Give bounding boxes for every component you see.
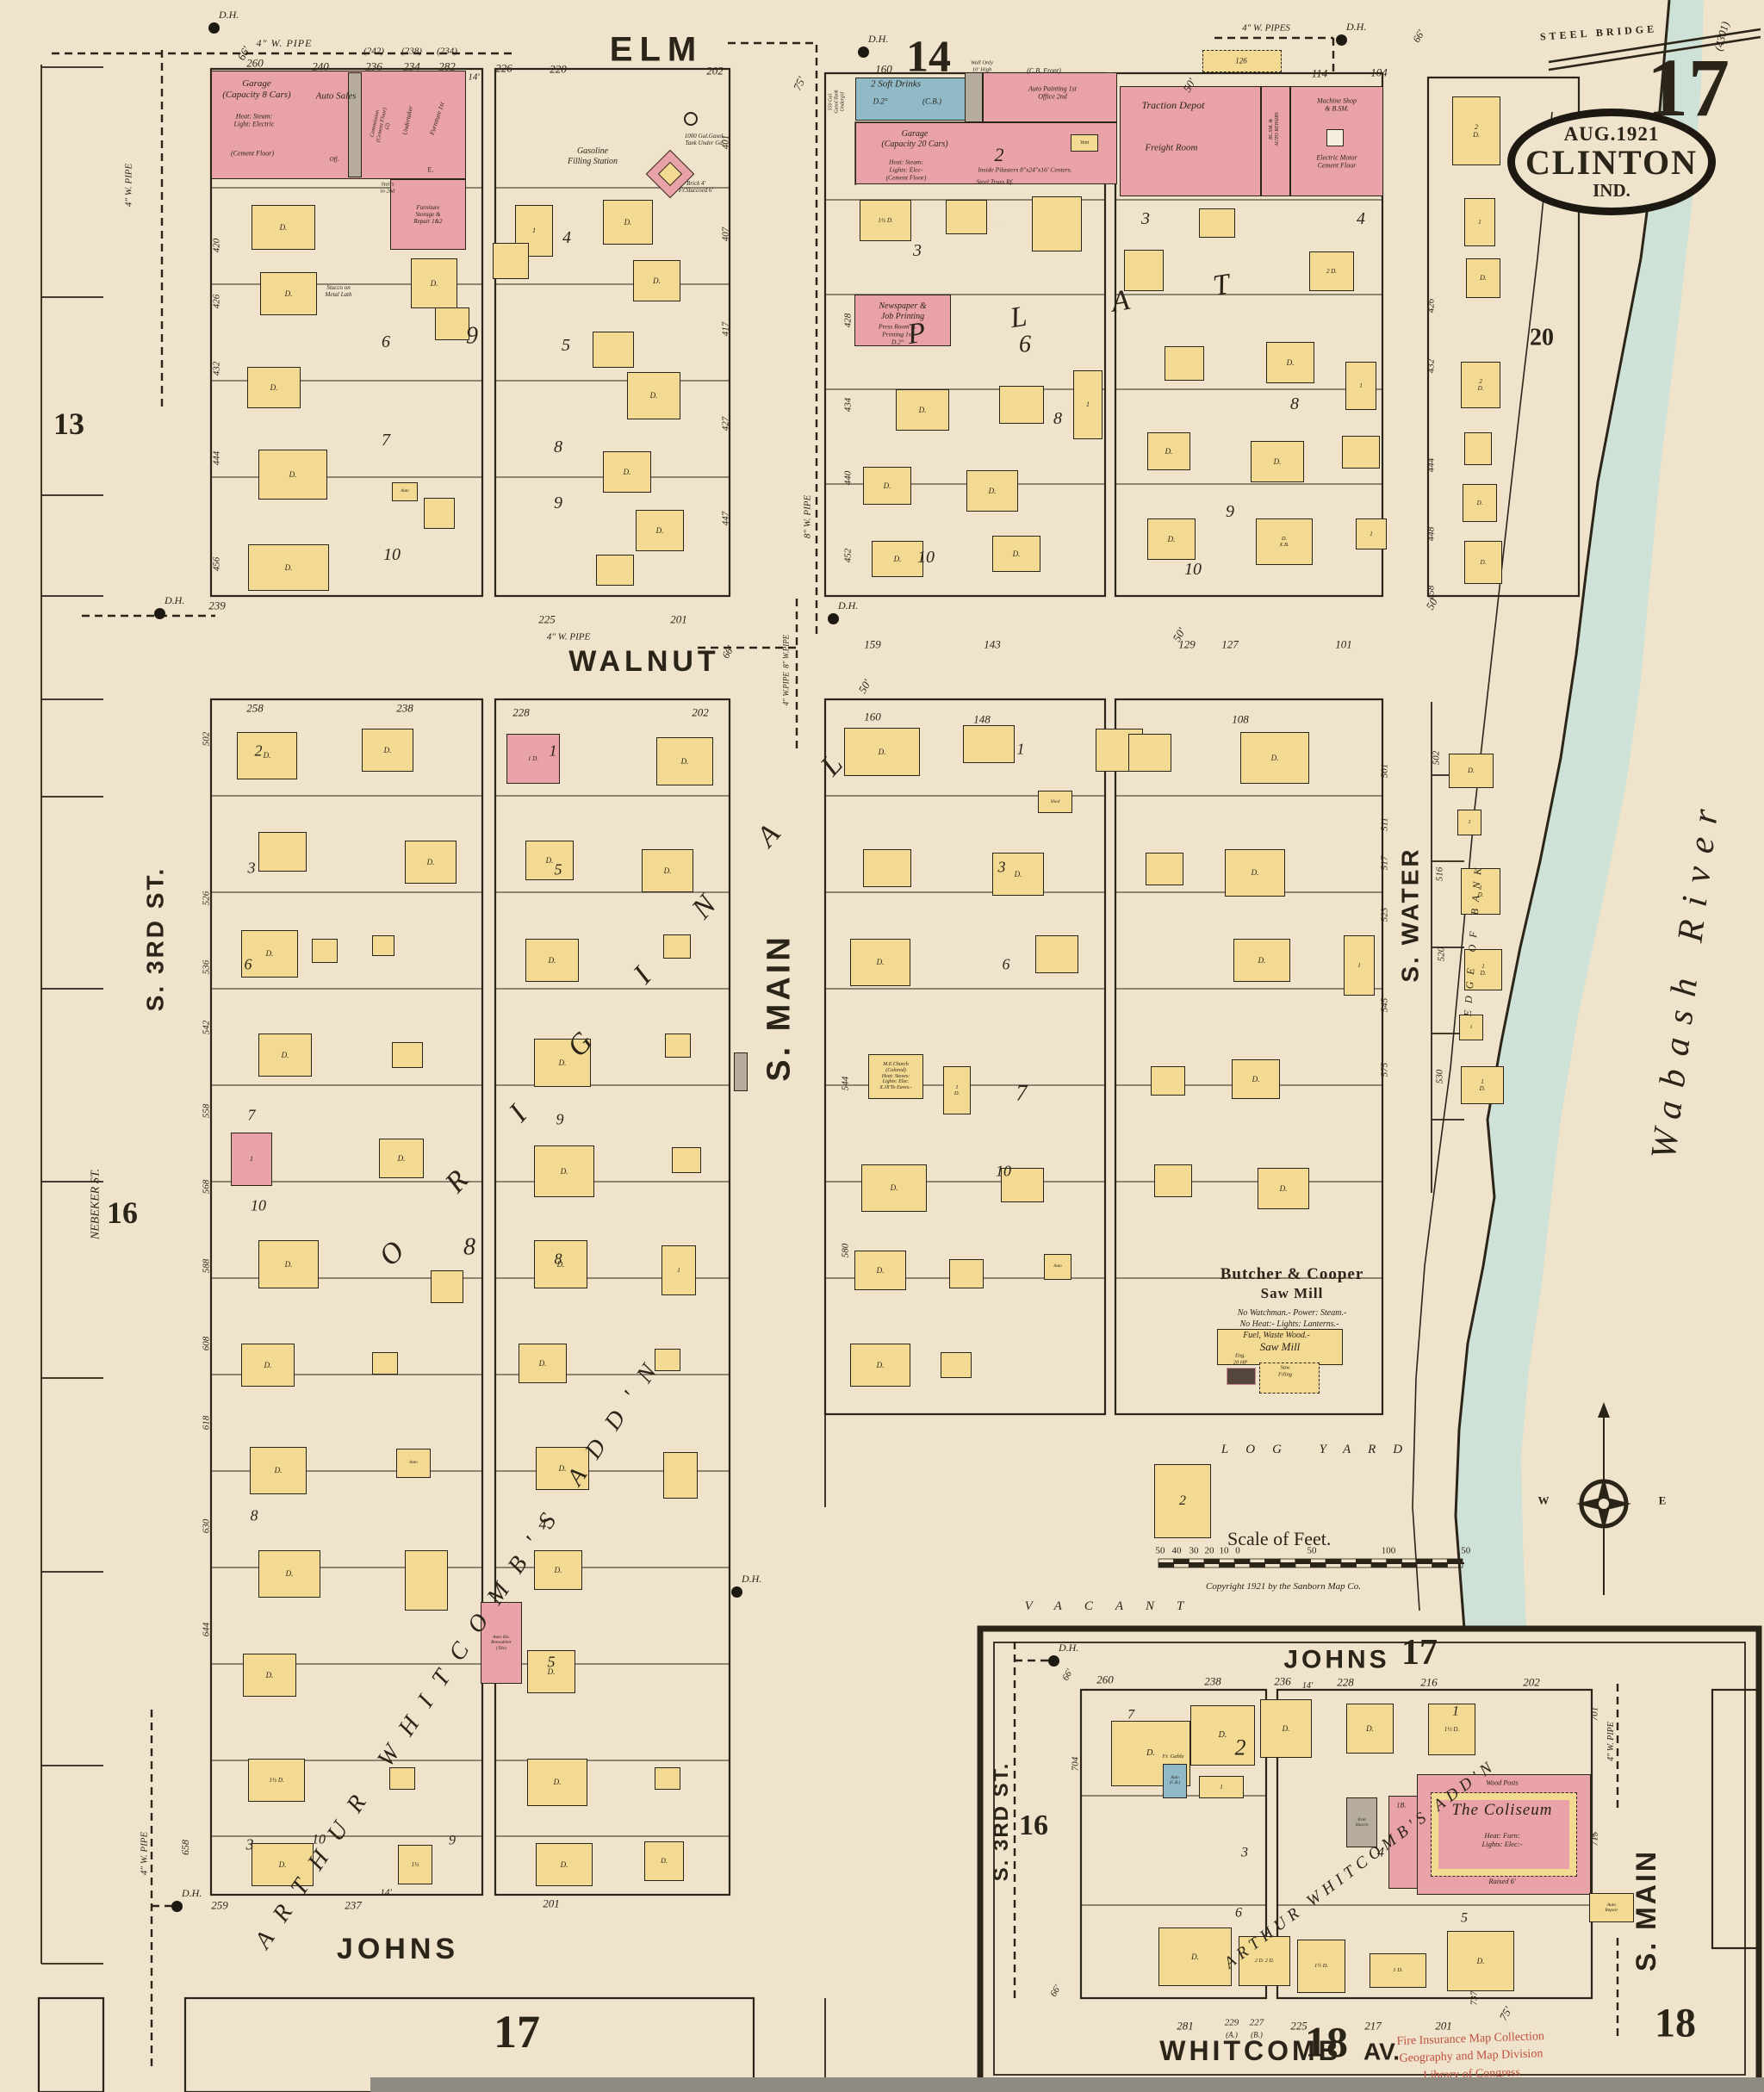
map-label-17: 17 [1401,1632,1438,1675]
map-label-502: 502 [1432,751,1443,766]
map-label-6: 6 [1003,955,1010,973]
building-d: D. [1464,541,1502,584]
map-label-3: 3 [248,859,256,877]
map-label-407: 407 [721,227,732,242]
building [312,939,338,963]
building-label: D. [1015,870,1022,878]
building-label: Auto [409,1461,417,1466]
map-label-517: 517 [1380,856,1391,871]
building-d: D. [525,841,574,880]
building-label: D. [285,563,293,572]
building [941,1352,972,1378]
building-label: D. [270,383,278,392]
scale-bar-segment [1295,1559,1311,1563]
compass-north-arrow-icon [1598,1402,1610,1418]
map-label-238: 238 [1204,1674,1221,1687]
map-label-10: 10 [996,1162,1011,1180]
map-label-fuel-waste-wood: Fuel, Waste Wood.- [1243,1331,1310,1341]
building-label: 1 [1086,400,1090,408]
building [258,832,307,872]
map-label-4-w-pipes: 4" W. PIPES [1242,23,1290,34]
building-label: D. [1146,1748,1155,1759]
dh-label: D.H. [838,599,858,612]
map-label-126: 126 [1235,57,1247,66]
building-1: 1 D. [1461,1066,1504,1104]
building [348,72,362,177]
map-label-160: 160 [875,62,892,75]
dh-marker-icon: D.H. [858,47,869,58]
map-label-2-soft-drinks: 2 Soft Drinks [871,79,921,90]
building [665,1034,691,1058]
map-label-440: 440 [843,471,854,486]
building [672,1147,701,1173]
building-label: D. [1168,535,1176,543]
map-label-3: 3 [1141,209,1150,230]
building-d: D. [1260,1699,1312,1758]
building-1: 1 [1457,810,1481,835]
map-label-bl-sm-auto-repairs: BL.SM. & AUTO REPAIRS [1269,112,1281,146]
map-label-butcher-cooper: Butcher & Cooper [1221,1265,1364,1284]
building-label: D. [546,856,554,865]
building-label: 1 [1359,382,1363,389]
map-label-458: 458 [1426,586,1438,600]
map-label-inside-pilasters-8-x24-x16-cen: Inside Pilasters 8"x24"x16' Centers. [978,167,1071,175]
compass-hub [1598,1498,1610,1510]
map-label-220: 220 [550,62,567,75]
building-label: D. [555,1566,562,1574]
map-label-9: 9 [466,321,478,350]
map-label-658: 658 [179,1840,191,1855]
map-label-444: 444 [1426,458,1438,473]
building-label: Auto Repair [1606,1903,1618,1914]
building-label: 2 D. [1478,378,1484,392]
map-label-444: 444 [212,451,223,466]
map-label-wood-posts: Wood Posts [1486,1779,1518,1786]
building [435,307,469,340]
building-d: D. [525,939,579,982]
block-outline [1115,699,1382,1414]
building-d: D. [1233,939,1290,982]
building-label: D. [561,1860,568,1869]
map-label-236: 236 [365,59,382,72]
map-label-8: 8 [251,1506,258,1524]
map-label-3: 3 [246,1835,254,1853]
building-d: D. [252,205,315,250]
map-label-press-room-b-printing-1st-d-2: Press Room B. Printing 1st D.2° [879,324,916,347]
map-label-568: 568 [202,1180,213,1195]
map-label-b: (B.) [1251,2031,1263,2040]
building-d: D. [411,258,457,308]
map-label-6: 6 [382,332,390,353]
building-label: 2 D. [1326,268,1337,275]
building-label: D. [650,391,658,400]
map-label-traction-depot: Traction Depot [1141,99,1204,111]
building [1165,346,1204,381]
map-label-saw-filing: Saw Filing [1278,1364,1292,1377]
map-label-148: 148 [973,712,991,725]
map-label-4: 4 [539,1515,547,1533]
map-label-8: 8 [1290,394,1299,415]
building [663,1452,698,1499]
map-label-4-w-pipe: 4" W. PIPE [1606,1722,1617,1761]
map-label-101: 101 [1335,637,1352,650]
map-label-s-main: S. MAIN [761,934,799,1082]
map-label-1: 1 [550,742,557,760]
building-label: D. [1477,1957,1485,1965]
building [999,386,1044,424]
building-label: 1 D. [1393,1967,1402,1973]
map-label-gasoline-filling-station: Gasoline Filling Station [568,146,618,167]
map-label-4-w-pipe-8-w-pipe: 4" W.PIPE 8" W.PIPE [782,635,792,705]
building-label: D. [877,1266,885,1275]
scale-bar-segment [1447,1559,1463,1563]
map-label-8: 8 [555,1250,562,1268]
scale-bar-segment [1158,1563,1174,1567]
map-label-237: 237 [345,1898,362,1911]
building-label: D. [286,1569,294,1578]
map-label-228: 228 [1337,1675,1354,1688]
building-label: D. [1480,274,1487,282]
building-label: Vent [1080,140,1089,146]
building-label: D. [266,949,274,958]
title-date: AUG.1921 [1564,124,1660,144]
building-label: D. [664,866,672,875]
map-label-stucco-on-metal-lath: Stucco on Metal Lath [326,284,352,299]
building-label: D. [1165,447,1173,456]
map-label-114: 114 [1312,66,1328,79]
map-label-426: 426 [212,295,223,309]
building-label: 2 D. [1473,123,1480,139]
building-label: Auto [1053,1264,1061,1269]
map-label-452: 452 [843,549,854,563]
building-d: D. [536,1843,593,1886]
building-1: 1 [231,1133,272,1186]
scale-bar-segment [1265,1559,1281,1563]
building-1: 1 [1356,518,1387,549]
map-label-502: 502 [202,732,213,747]
map-label-fr-gable: Fr. Gable [1163,1754,1184,1760]
map-label-234: 234 [403,59,420,72]
building-label: D. [1280,1184,1288,1193]
building-label: D. [264,1361,272,1369]
building-label: 1½ D. [1444,1726,1459,1733]
map-label-brick-4-fr-stuccoed-6: Brick 4' Fr.Stuccoed 6' [679,180,713,195]
map-label-523: 523 [1380,908,1391,922]
map-label-heat-steam-lights-elec-cement-: Heat: Steam: Lights: Elec- (Cement Floor… [886,159,927,183]
dh-label: D.H. [1059,1642,1078,1654]
map-label-9: 9 [556,1110,564,1128]
building-label: D. [1274,457,1282,466]
map-label-electric-motor-cement-floor: Electric Motor Cement Floor [1316,154,1357,171]
building [734,1052,748,1091]
map-label-550-gal-gasol-tank-underg-d: 550 Gal. Gasol.Tank Underg'd [828,90,846,113]
building-label: Iron Stucco [1356,1817,1369,1828]
map-label-w: W [1538,1493,1550,1506]
building-auto: Auto Repair [1589,1893,1634,1922]
building-label: 1 [1357,962,1361,969]
building-label: D. [1013,549,1021,558]
map-label-202: 202 [706,64,724,77]
copyright-line: Copyright 1921 by the Sanborn Map Co. [1206,1581,1361,1592]
building [405,1550,448,1611]
building-d: D. [656,737,713,785]
scale-tick-label: 150 [1457,1546,1471,1557]
building-label: 2 D. 2 D. [1255,1959,1274,1965]
building-label: D. [989,487,997,495]
building-auto: Auto [396,1449,431,1478]
map-label-544: 544 [841,1077,852,1091]
map-label-1: 1 [1452,1704,1459,1721]
building-label: D. X.B. [1279,536,1289,549]
building-d: D. [1147,518,1196,560]
building-1: 1 [1344,935,1375,996]
building-d: D. [863,467,911,505]
building-label: Shed [1051,799,1060,804]
building [424,498,455,529]
building-label: 1 [250,1155,253,1163]
building [1151,1066,1185,1096]
map-label-5: 5 [1461,1911,1468,1927]
building-d: D. [519,1344,567,1383]
map-label-520: 520 [1437,947,1448,962]
map-label-240: 240 [312,59,329,72]
map-label-3: 3 [998,858,1006,876]
map-label-580: 580 [841,1244,852,1258]
map-label-4-w-pipe: 4" W. PIPE [547,632,590,643]
building-d: D. [1449,754,1494,788]
building [946,200,987,234]
map-label-434: 434 [843,398,854,413]
map-label-14: 14' [1302,1681,1313,1692]
building-label: D. [656,526,664,535]
dh-marker-icon: D.H. [154,608,165,619]
map-label-575: 575 [1380,1063,1391,1077]
building-label: D. [431,279,438,288]
building-label: D. [1287,358,1295,367]
map-label-217: 217 [1364,2019,1382,2032]
building-label: D. [1252,868,1259,877]
building [431,1270,463,1303]
map-label-newspaper-job-printing: Newspaper & Job Printing [879,301,926,322]
map-label-14: 14' [468,72,479,84]
map-label-456: 456 [212,557,223,572]
building-d: D. [850,1344,910,1387]
building-label: 1½ D. [269,1777,283,1784]
building [863,849,911,887]
building-d: D. [1232,1059,1280,1099]
building-d: D. [642,849,693,892]
building-2: 2 D. [1452,96,1500,165]
building-label: D. [1271,754,1279,762]
map-label-258: 258 [246,701,264,714]
building-d: D. [247,367,301,408]
map-label-432: 432 [212,362,223,376]
building [593,332,634,368]
building-d: D. [248,544,329,591]
map-label-4-w-pipe: 4" W. PIPE [140,1832,151,1875]
building-label: 1 [1370,531,1373,537]
map-label-c-b-front: (C.B. Front) [1027,66,1060,74]
building [392,1042,423,1068]
building-d: D. [1147,432,1190,470]
building-iron: Iron Stucco [1346,1797,1377,1847]
map-label-129: 129 [1178,637,1196,650]
map-label-4-w-pipe: 4" W. PIPE [257,37,313,49]
building-label: D. [877,1361,885,1369]
building-1: 1 [1459,1015,1483,1040]
building [684,112,698,126]
map-label-427: 427 [721,417,732,431]
map-label-4-w-pipe: 4" W. PIPE [124,164,135,207]
map-label-143: 143 [984,637,1001,650]
building-label: 1 [1478,219,1481,226]
building [493,243,529,279]
building-1: 1½ [398,1845,432,1884]
map-label-259: 259 [211,1898,228,1911]
building [1035,935,1078,973]
scale-tick-label: 10 [1220,1546,1229,1557]
map-label-4: 4 [1377,1846,1384,1862]
dh-marker-icon: D.H. [731,1586,742,1598]
building-label: Auto Ho. Remodeler (Tile) [491,1635,512,1651]
building-1: 1 [1345,362,1376,410]
scale-bar-segment [1174,1559,1189,1563]
building-auto: Auto [392,482,418,501]
building-label: D. [1481,559,1487,566]
building-2: 2 D. [1461,362,1500,408]
building-label: Auto (C.B.) [1170,1776,1180,1786]
map-label-227: 227 [1250,2018,1264,2029]
map-label-5: 5 [999,223,1000,224]
title-state: IND. [1593,182,1630,200]
map-label-16: 16 [107,1195,138,1231]
map-label-201: 201 [670,612,687,625]
building-label: D. [624,218,632,227]
building-label: 1½ D. [1314,1963,1328,1969]
map-label-johns: JOHNS [1283,1644,1389,1674]
map-label-225: 225 [538,612,556,625]
map-label-618: 618 [202,1416,213,1431]
building-d: D. [362,729,413,772]
building-label: D. [275,1466,283,1474]
scale-bar-segment [1417,1559,1432,1563]
building-d: D. [258,1550,320,1598]
map-label-608: 608 [202,1337,213,1351]
building-label: D. [891,1183,898,1192]
building [1146,853,1183,885]
map-label-a: (A.) [1226,2031,1238,2040]
building-label: 1 [1220,1784,1223,1791]
building-label: D. [1366,1724,1374,1733]
building-label: D. [289,470,297,479]
map-label-8-w-pipe: 8" W. PIPE [803,495,814,538]
scale-tick-label: 50 [1307,1546,1317,1557]
map-label-6: 6 [1235,1906,1242,1922]
map-label-7: 7 [1016,1081,1028,1108]
scale-bar-segment [1371,1563,1387,1567]
map-label-432: 432 [1426,359,1438,374]
building-d: D. [1258,1168,1309,1209]
map-label-saw-mill: Saw Mill [1261,1285,1324,1302]
building-label: D. [1252,1075,1260,1083]
scale-tick-label: 20 [1205,1546,1214,1557]
building-shed: Shed [1038,791,1072,813]
map-label-201: 201 [543,1896,560,1909]
map-label-10: 10 [383,545,401,566]
map-label-216: 216 [1420,1675,1438,1688]
building [949,1259,984,1288]
map-label-machine-shop-b-sm: Machine Shop & B.SM. [1317,97,1357,114]
building-1-d: 1 D. [1370,1953,1426,1988]
building-label: Saw Mill [1260,1341,1301,1354]
building-d: D. [258,450,327,500]
dh-marker-icon: D.H. [171,1901,183,1912]
map-label-428: 428 [843,313,854,328]
building-d: D. [250,1447,307,1494]
map-label-238: (238) [401,47,422,58]
scale-bar-segment [1234,1559,1250,1563]
map-label-s-3rd-st: S. 3RD ST. [140,866,169,1011]
map-label-stairs-to-2nd: Stairs to 2nd [381,181,394,194]
map-label-202: 202 [1523,1675,1540,1688]
building-d: D. [644,1841,684,1881]
building-label: 1½ [412,1861,419,1868]
building-d: D. [243,1654,296,1697]
building-1-d: 1½ D. [860,200,911,241]
building-d: D. [896,389,949,431]
map-label-4: 4 [1357,209,1365,230]
building-label: D. [1283,1724,1290,1733]
building [372,1352,398,1375]
dh-marker-icon: D.H. [1048,1655,1059,1667]
map-label-238: 238 [396,701,413,714]
building-d: D. [1447,1931,1514,1991]
map-label-garage-capacity-20-cars: Garage (Capacity 20 Cars) [881,129,947,150]
building-label: D. [539,1359,547,1368]
building-d: D. [1251,441,1304,482]
building [1199,208,1235,238]
building [1154,1164,1192,1197]
building-label: D. [661,1857,668,1865]
building-d: D. [861,1164,927,1212]
building-label: D. [681,757,689,766]
map-label-704: 704 [1071,1757,1082,1772]
map-label-242: (242) [363,47,384,58]
building-d: D. [966,470,1018,512]
map-label-10: 10 [1184,560,1202,580]
map-label-644: 644 [202,1623,213,1637]
map-label-1: 1 [1017,740,1025,758]
map-label-d-2: D.2° [873,97,888,107]
map-label-18: 18 [1655,2000,1696,2049]
map-label-heat-steam-light-electric: Heat: Steam: Light: Electric [234,113,275,129]
map-label-8: 8 [554,438,562,458]
map-label-13: 13 [53,406,84,442]
map-label-e: E [1659,1493,1667,1506]
dh-label: D.H. [165,594,184,607]
map-label-1000-gal-gasol-tank-under-gd: 1000 Gal.Gasol. Tank Under Gd. [685,133,724,147]
building-d: D. [1266,342,1314,383]
building-label: 1 [1470,1025,1473,1031]
map-label-7: 7 [382,431,390,451]
building-auto: Auto (C.B.) [1163,1764,1187,1798]
map-label-234: (234) [437,47,457,58]
map-label-5: 5 [548,1653,556,1671]
map-label-walnut: WALNUT [568,644,719,679]
scale-bar-segment [1189,1563,1204,1567]
map-label-8: 8 [463,1232,475,1261]
map-label-542: 542 [202,1021,213,1035]
